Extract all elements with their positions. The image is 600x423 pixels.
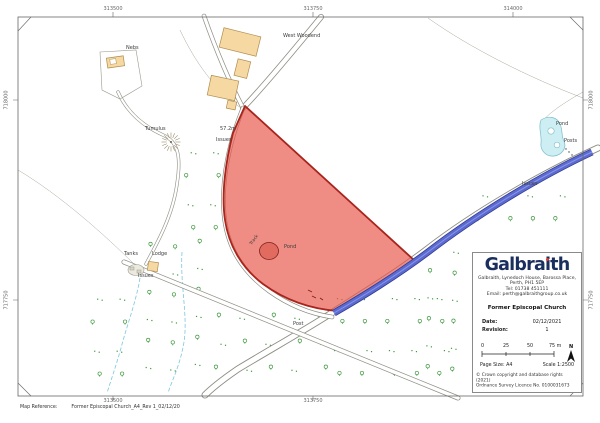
date-row: Date: 02/12/2021 xyxy=(476,318,578,326)
revision-label: Revision: xyxy=(476,327,516,333)
tumulus-mound xyxy=(162,133,181,152)
pond-northeast xyxy=(540,117,573,156)
nebs-plot xyxy=(100,50,142,99)
pond-in-site xyxy=(260,243,279,260)
scale-bar: 0 25 50 75 m N xyxy=(476,340,580,364)
copyright-line-2: Ordnance Survey Licence No. 0100031673 xyxy=(476,384,573,389)
address-email: Email: perth@galbraithgroup.co.uk xyxy=(476,292,578,297)
galbraith-logo: Galbraith xyxy=(476,255,578,275)
office-address: Galbraith, Lynedoch House, Barossa Place… xyxy=(476,276,578,298)
revision-row: Revision: 1 xyxy=(476,326,578,334)
scale-tick-50: 50 xyxy=(527,343,533,349)
driveway xyxy=(118,92,179,264)
date-label: Date: xyxy=(476,319,516,325)
posts-dots xyxy=(565,148,572,155)
logo-text: Galbra xyxy=(485,255,545,275)
revision-value: 1 xyxy=(516,327,578,333)
date-value: 02/12/2021 xyxy=(516,319,578,325)
title-panel: Galbraith Galbraith, Lynedoch House, Bar… xyxy=(472,252,582,393)
map-sheet: NebsWest WoodendTumulus57.2mIssuesPondTr… xyxy=(0,0,600,423)
scale-tick-0: 0 xyxy=(481,343,484,349)
logo-text-end: th xyxy=(550,255,569,275)
map-reference-value: Former Episcopal Church_A4_Rev 1_02/12/2… xyxy=(71,405,179,410)
tanks-area xyxy=(128,265,144,276)
plan-title: Former Episcopal Church xyxy=(476,305,578,311)
north-label: N xyxy=(569,344,573,350)
copyright-line-1: © Crown copyright and database rights (2… xyxy=(476,373,573,384)
page-size: Page Size: A4 xyxy=(480,363,512,368)
map-reference: Map Reference:Former Episcopal Church_A4… xyxy=(20,405,180,410)
scale-tick-25: 25 xyxy=(503,343,509,349)
scale-bar-line xyxy=(482,351,554,357)
lodge-building xyxy=(147,261,158,271)
map-reference-label: Map Reference: xyxy=(20,405,57,410)
logo-i: i xyxy=(545,255,550,275)
scale-tick-75: 75 m xyxy=(549,343,562,349)
north-arrow-icon xyxy=(567,350,575,362)
copyright: © Crown copyright and database rights (2… xyxy=(476,373,573,389)
page-size-scale-row: Page Size: A4 Scale 1:2500 xyxy=(476,363,578,368)
scale-text: Scale 1:2500 xyxy=(543,363,574,368)
plan-meta: Date: 02/12/2021 Revision: 1 xyxy=(476,318,578,334)
